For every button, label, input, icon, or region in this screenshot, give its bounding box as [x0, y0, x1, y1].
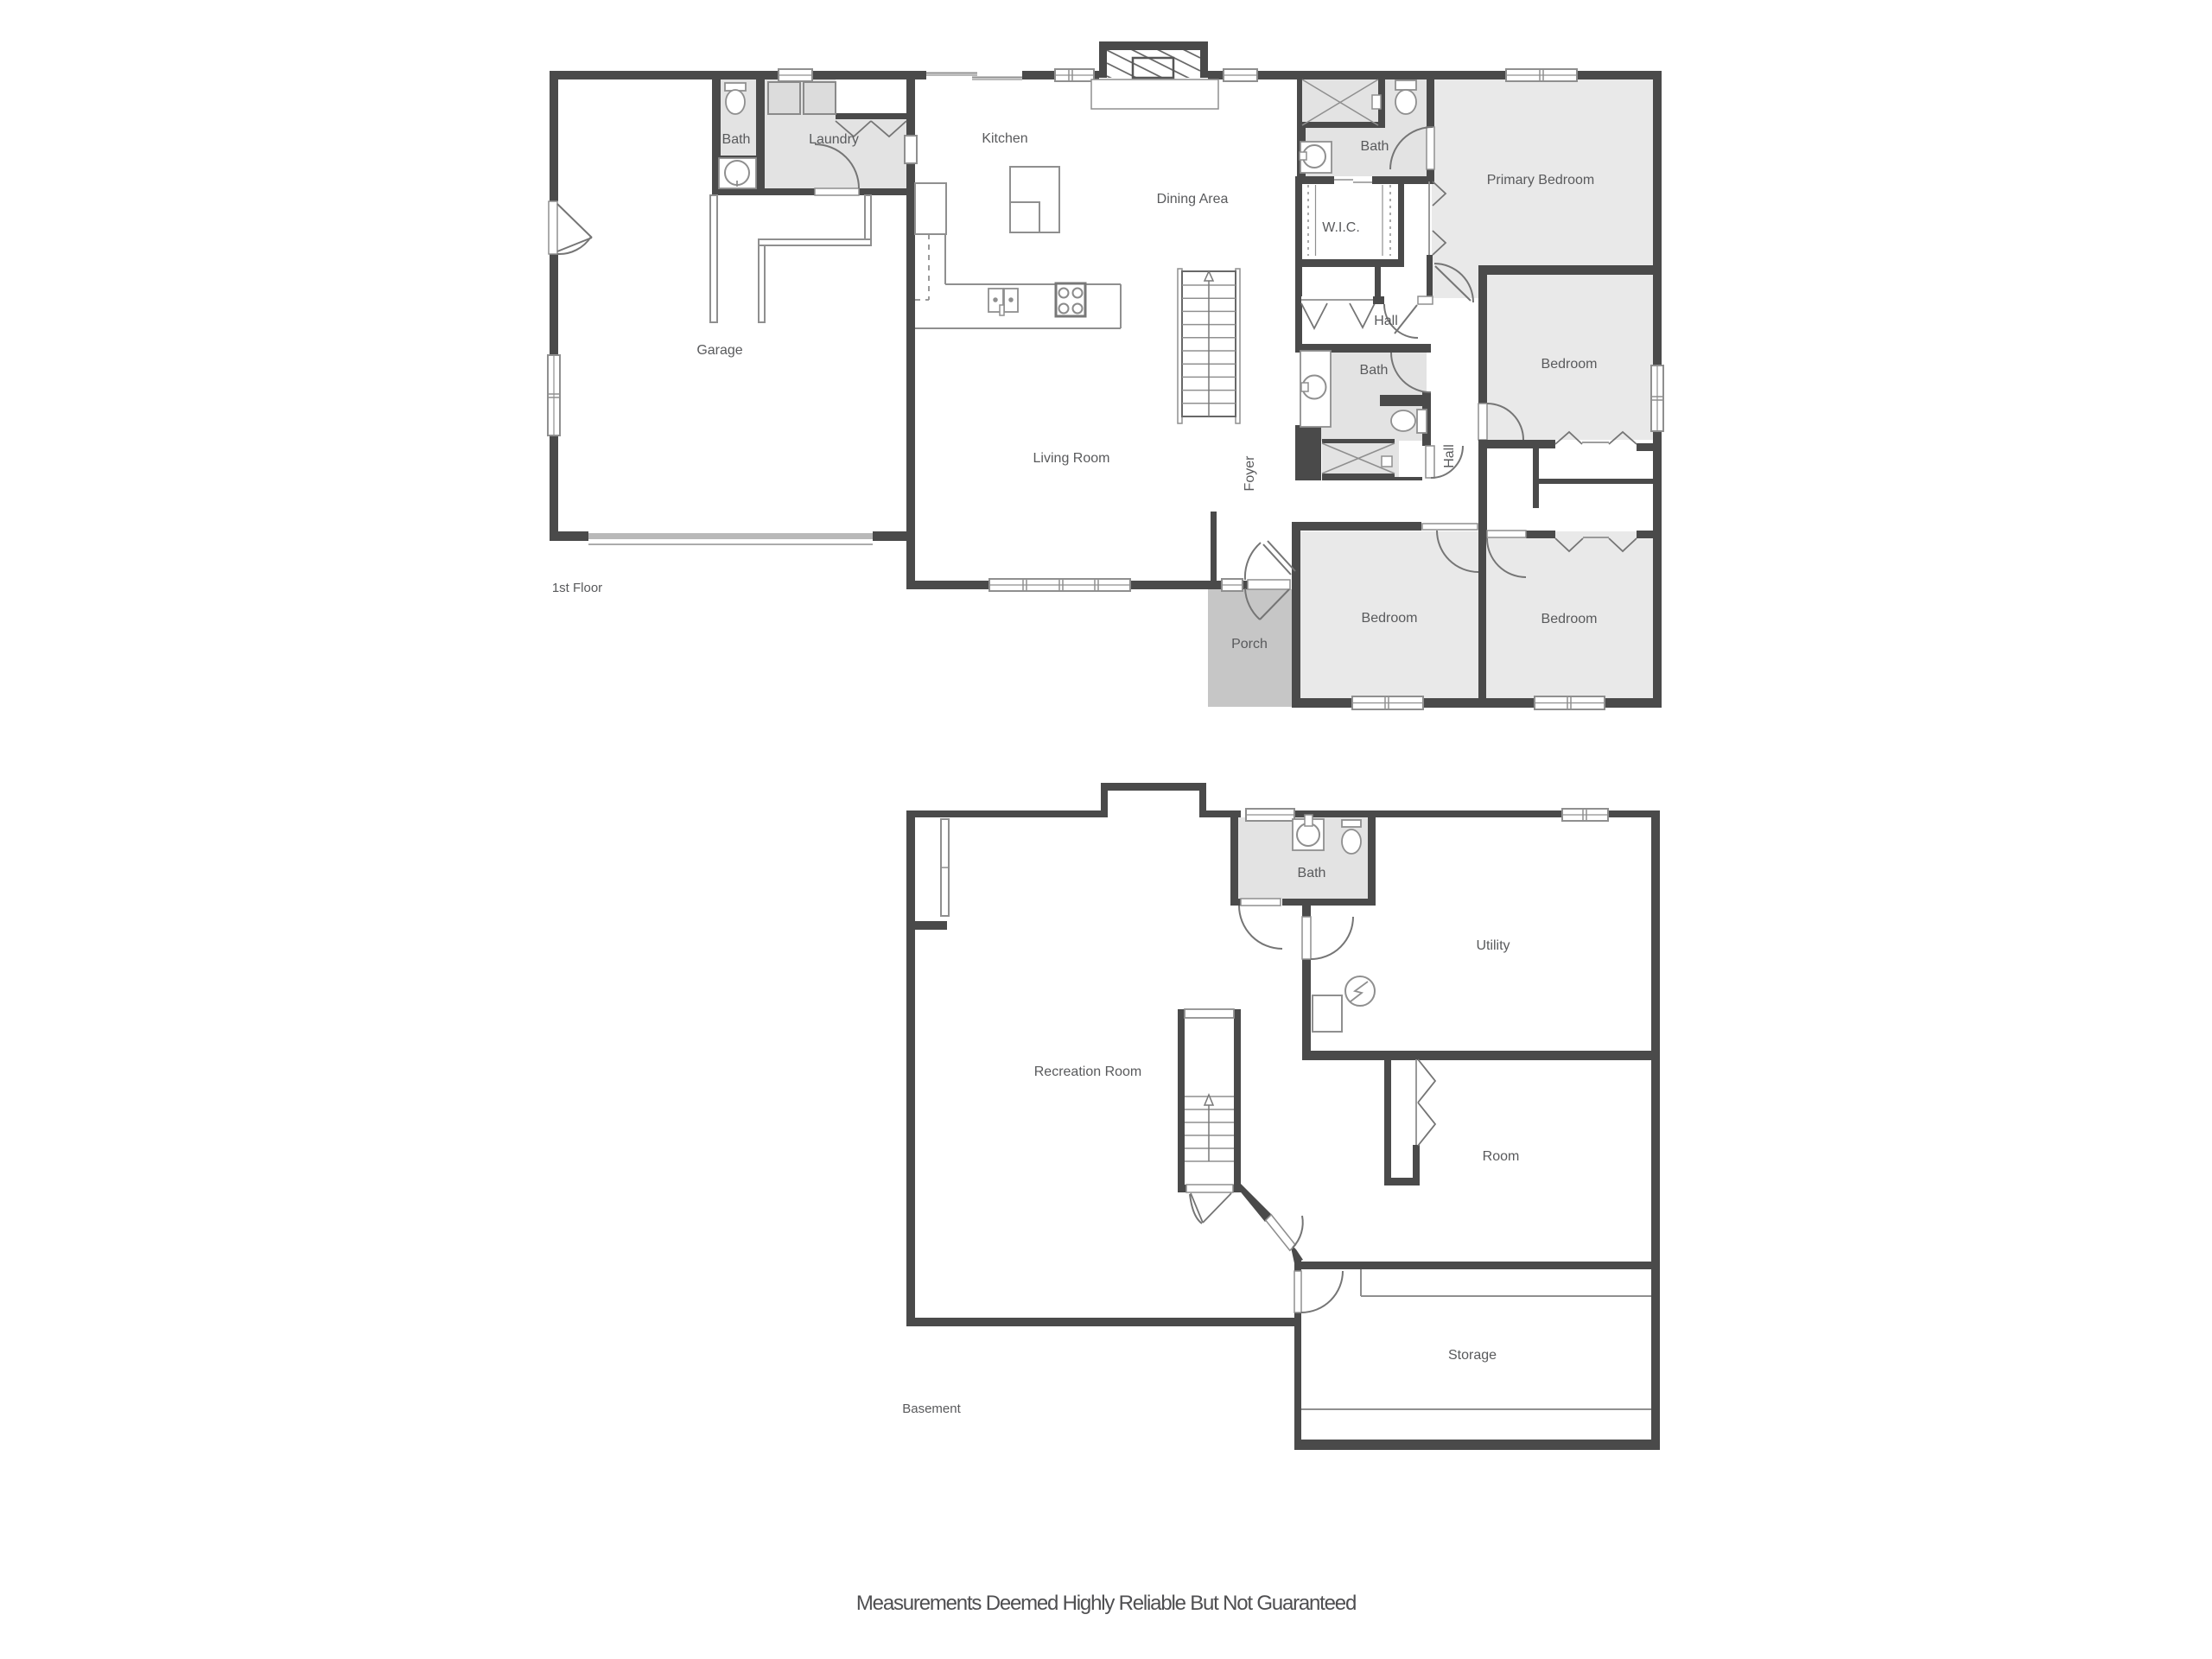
svg-text:Laundry: Laundry	[809, 132, 859, 147]
svg-text:Hall: Hall	[1442, 444, 1457, 468]
svg-text:Basement: Basement	[902, 1402, 961, 1416]
svg-text:Room: Room	[1483, 1149, 1520, 1164]
svg-text:Bath: Bath	[1298, 866, 1326, 880]
svg-text:Primary Bedroom: Primary Bedroom	[1487, 173, 1594, 188]
svg-text:Bedroom: Bedroom	[1541, 357, 1598, 372]
svg-text:Utility: Utility	[1476, 938, 1510, 953]
svg-text:1st Floor: 1st Floor	[552, 581, 602, 595]
svg-text:Bath: Bath	[1360, 363, 1389, 378]
svg-text:Foyer: Foyer	[1243, 455, 1257, 492]
svg-text:Measurements Deemed Highly Rel: Measurements Deemed Highly Reliable But …	[856, 1592, 1356, 1615]
svg-text:Kitchen: Kitchen	[982, 131, 1027, 146]
svg-text:Recreation Room: Recreation Room	[1034, 1065, 1142, 1079]
svg-text:Garage: Garage	[696, 343, 742, 358]
svg-text:Bath: Bath	[1361, 139, 1389, 154]
svg-text:Hall: Hall	[1374, 314, 1398, 328]
svg-text:Porch: Porch	[1231, 637, 1268, 652]
svg-text:W.I.C.: W.I.C.	[1322, 220, 1360, 235]
svg-text:Bedroom: Bedroom	[1362, 611, 1418, 626]
svg-text:Living Room: Living Room	[1033, 451, 1110, 466]
svg-text:Storage: Storage	[1448, 1348, 1497, 1363]
svg-text:Bedroom: Bedroom	[1541, 612, 1598, 626]
svg-text:Dining Area: Dining Area	[1157, 192, 1229, 207]
svg-text:Bath: Bath	[722, 132, 751, 147]
